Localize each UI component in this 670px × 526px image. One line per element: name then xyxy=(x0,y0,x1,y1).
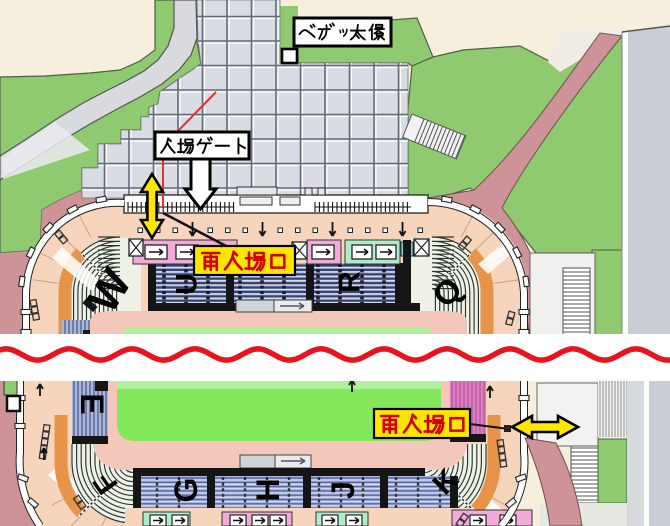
svg-text:G: G xyxy=(168,478,204,503)
svg-text:R: R xyxy=(334,271,367,293)
svg-text:H: H xyxy=(250,478,286,501)
svg-text:U: U xyxy=(171,273,204,295)
svg-text:E: E xyxy=(74,393,110,414)
svg-text:J: J xyxy=(325,481,361,499)
